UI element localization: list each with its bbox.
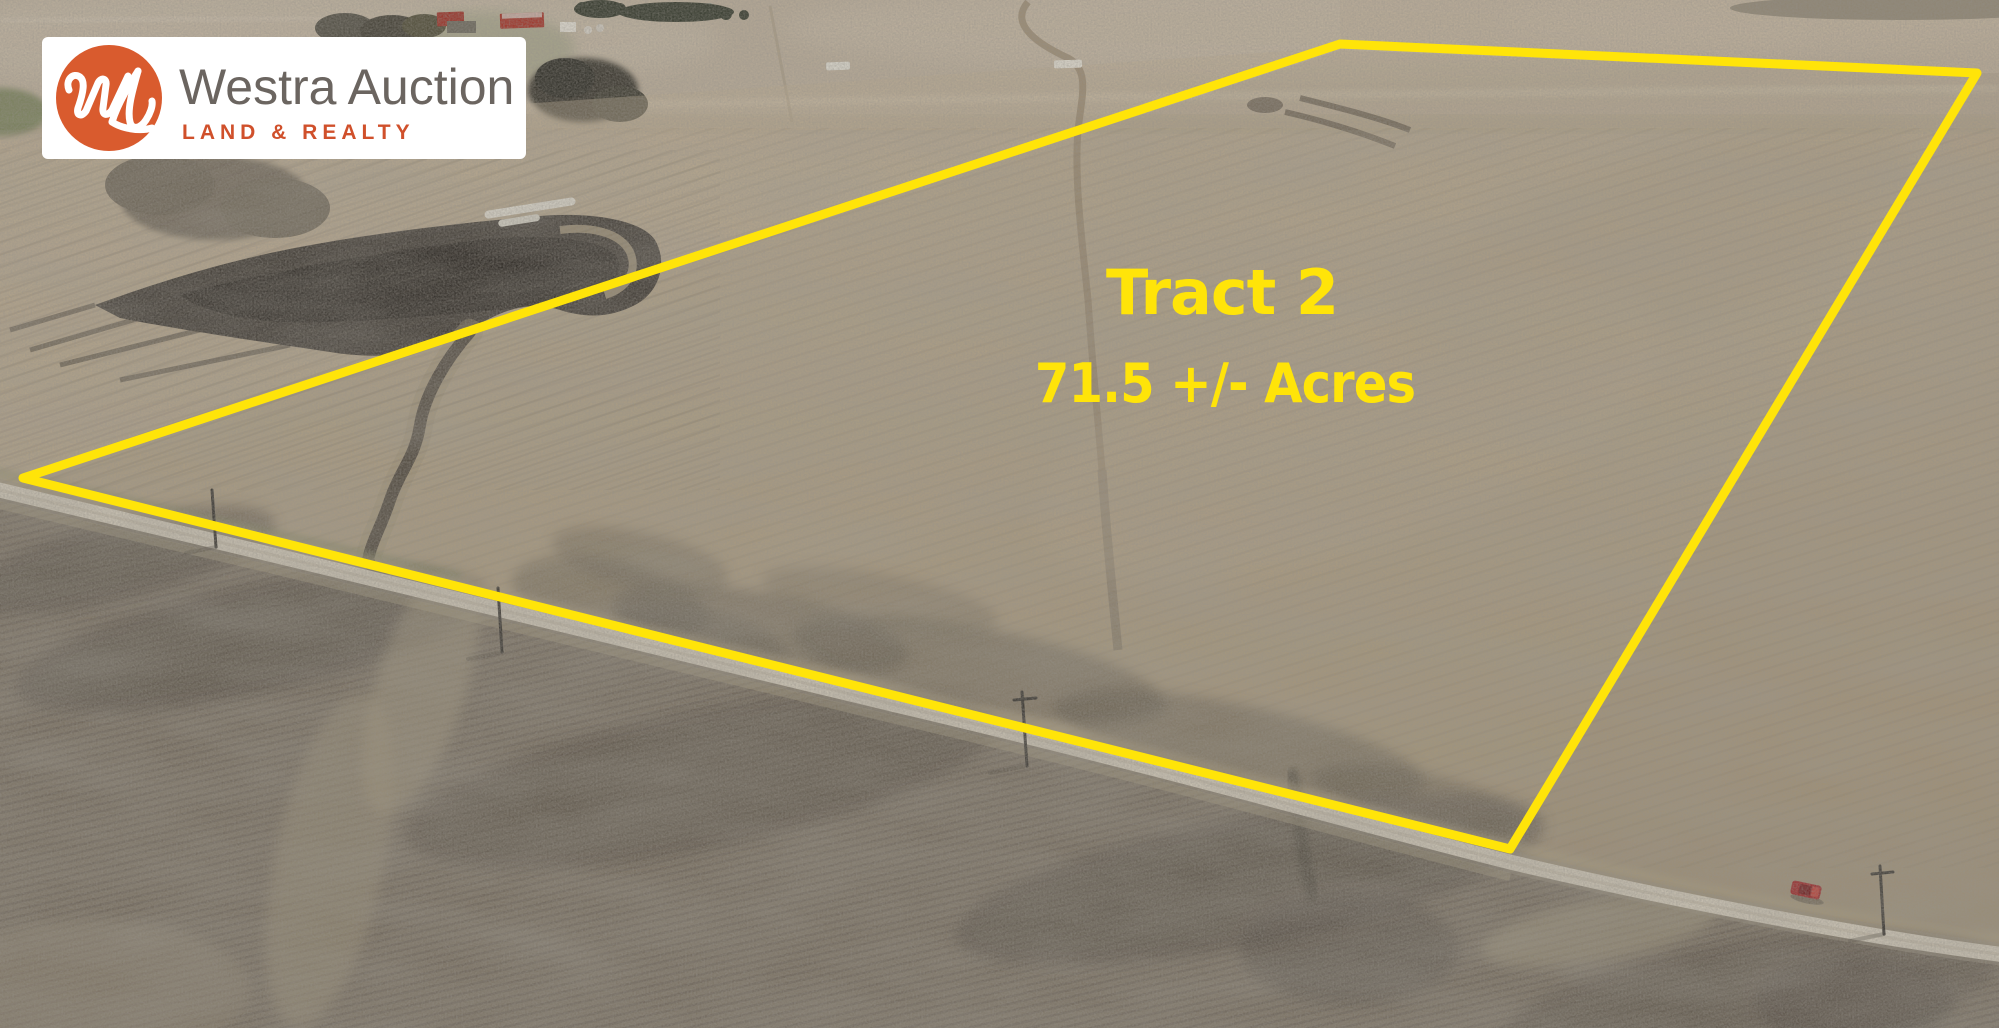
logo-circle bbox=[56, 45, 162, 151]
noise-overlay-blotch bbox=[0, 130, 1999, 1028]
tract-label: Tract 2 bbox=[1106, 262, 1338, 324]
logo-mark bbox=[55, 44, 163, 152]
acreage-label: 71.5 +/- Acres bbox=[1035, 357, 1415, 411]
brand-name: Westra Auction bbox=[179, 60, 514, 115]
logo-panel: Westra Auction LAND & REALTY bbox=[42, 37, 526, 159]
aerial-listing-graphic: Tract 2 71.5 +/- Acres Westra Auction LA… bbox=[0, 0, 1999, 1028]
brand-tagline: LAND & REALTY bbox=[182, 121, 415, 145]
